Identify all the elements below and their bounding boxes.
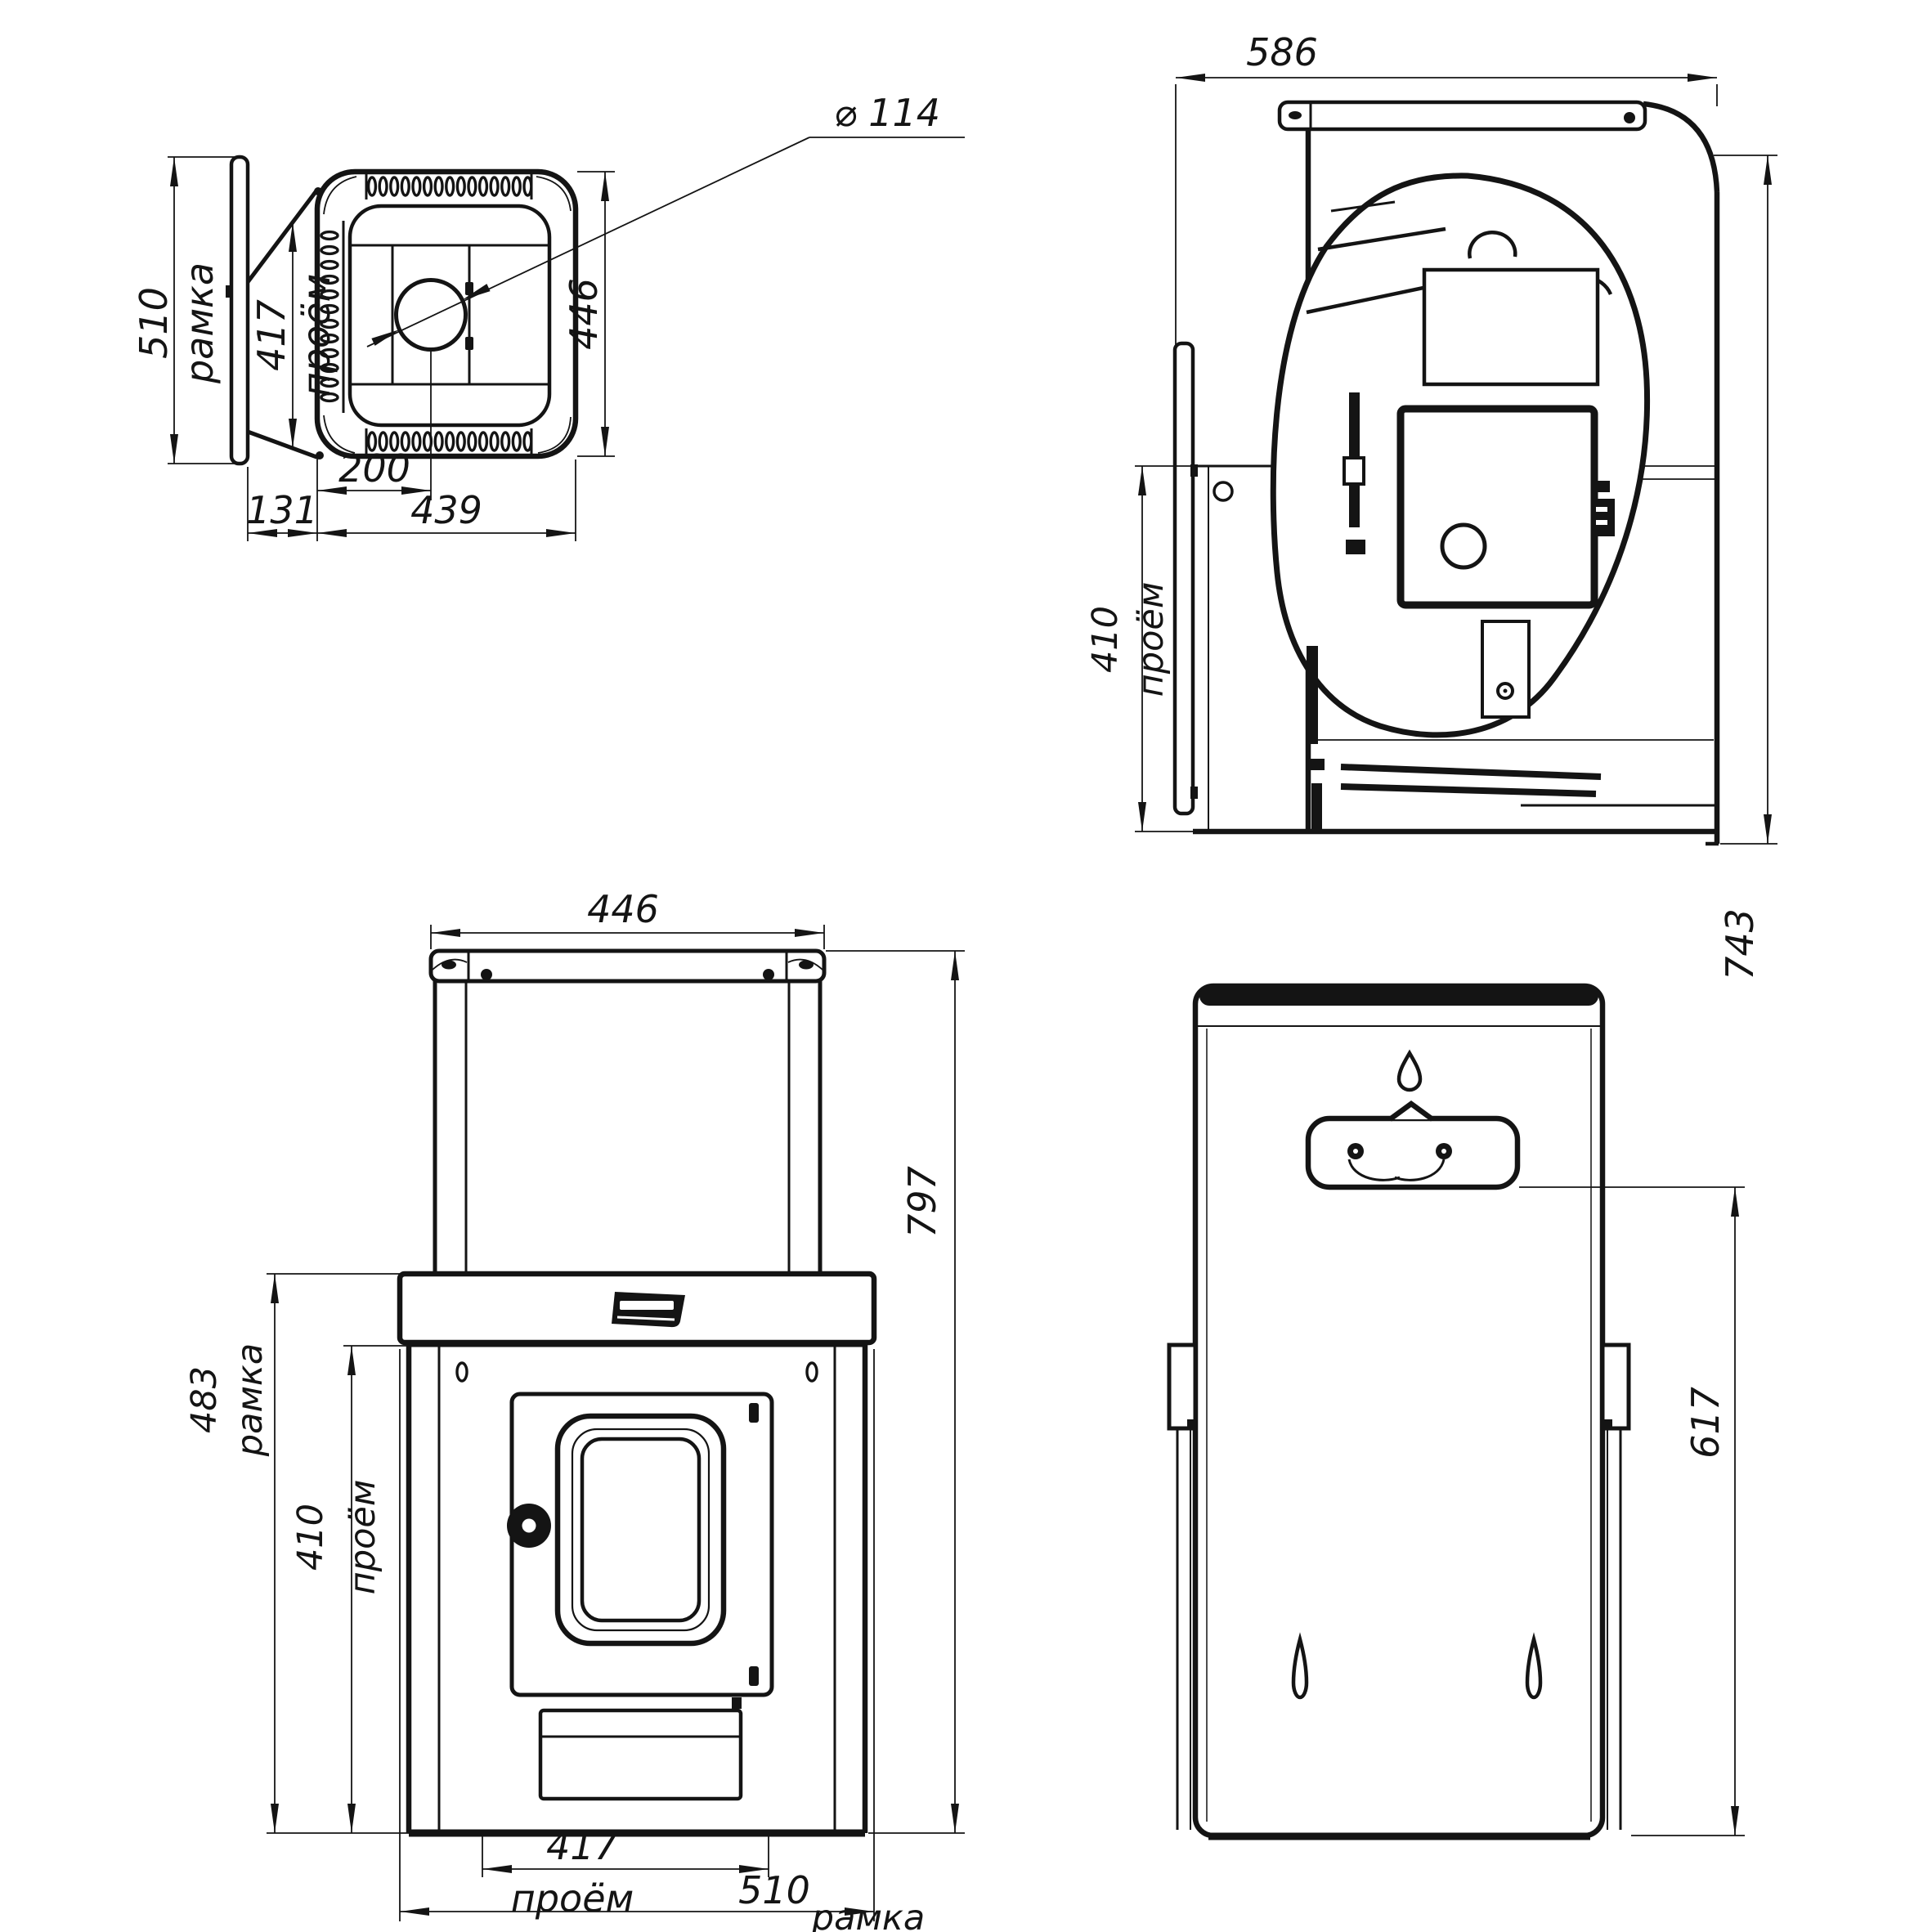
front-rail-dot-right [799,961,814,970]
drawing-sheet: 510 рамка 417 проём ⌀ 114 446 200 [0,0,1932,1932]
plan-opening-edge-upper [248,190,317,282]
dim-label-side-height: 743 [1718,908,1762,980]
dim-label-plan-depth: 446 [562,278,606,350]
front-view [400,951,874,1833]
dim-label-side-opening-word: проём [1131,582,1172,697]
rear-top-rail [1199,986,1598,1006]
front-door-window-glass [582,1439,699,1620]
stove-dimension-drawing: 510 рамка 417 проём ⌀ 114 446 200 [0,0,1932,1932]
plan-chimney-hole [397,280,466,350]
dim-label-front-opening-w-word: проём [511,1876,634,1921]
side-view [1175,102,1719,844]
dim-label-plan-body: 439 [410,488,482,532]
front-door-window-mid [572,1429,709,1630]
front-brand-text-band [620,1301,674,1310]
rear-mount-plate-notch [1390,1104,1432,1119]
front-rail-dot-left [442,961,456,970]
dim-label-plan-gap: 131 [246,488,318,532]
plan-hinge-dot-lower [316,451,324,459]
dim-label-plan-offset: 200 [338,446,410,491]
dim-label-front-width: 446 [587,887,659,931]
dim-label-front-frame-h-value: 483 [184,1366,225,1433]
side-top-rail [1280,102,1645,129]
plan-wall-frame-plate [231,157,248,464]
front-door-latch-top [749,1403,759,1423]
dim-label-plan-frame-value: 510 [132,287,176,359]
rear-bracket-left [1169,1345,1195,1428]
dim-label-side-opening-value: 410 [1085,606,1126,673]
plan-opening-edge-lower [248,432,319,458]
front-view-dimensions: 446 797 483 рамка 410 проём 417 проём [184,887,965,1932]
dim-label-front-opening-h-value: 410 [290,1504,331,1571]
side-rail-dot [1624,112,1635,123]
rear-bracket-right [1603,1345,1629,1428]
front-ash-drawer [540,1710,741,1799]
dim-label-front-frame-w-value: 510 [738,1868,810,1912]
rear-view [1169,986,1629,1836]
dim-label-front-opening-w-value: 417 [546,1824,618,1868]
rear-mount-plate [1308,1118,1517,1187]
dim-label-plan-frame-word: рамка [177,262,222,384]
side-tunnel-hole [1214,482,1232,500]
dim-label-front-frame-w-word: рамка [811,1898,925,1932]
dim-label-side-depth: 586 [1246,30,1318,74]
dim-label-front-opening-h-word: проём [343,1480,383,1595]
dim-label-plan-opening-word: проём [294,274,338,397]
dim-label-front-height: 797 [900,1166,944,1238]
rear-bottom-slot-left [1293,1639,1307,1697]
side-rail-cap-dot [1289,111,1302,119]
side-hinge-nub-lower [1190,787,1198,799]
rear-bottom-slot-right [1527,1639,1540,1697]
plan-clip-lower [465,337,473,350]
side-back-top-curve [1643,104,1717,192]
plan-inner-plate [350,206,549,425]
dim-label-plan-opening-value: 417 [249,299,294,371]
rear-view-dimensions: 617 [1519,1187,1745,1836]
front-screw-slot-left [457,1363,467,1381]
rear-teardrop-hole [1399,1053,1420,1090]
dim-label-front-frame-h-word: рамка [230,1343,271,1457]
front-drawer-latch [732,1697,742,1709]
side-wall-frame-plate [1175,343,1193,814]
plan-frame-hinge-nub [226,285,232,298]
dim-label-rear-mount: 617 [1683,1387,1728,1459]
front-door-latch-bottom [749,1666,759,1686]
plan-clip-upper [465,282,473,295]
dim-label-plan-diameter: ⌀ 114 [834,91,940,135]
plan-top-vent-slots [366,173,531,199]
front-screw-slot-right [807,1363,817,1381]
